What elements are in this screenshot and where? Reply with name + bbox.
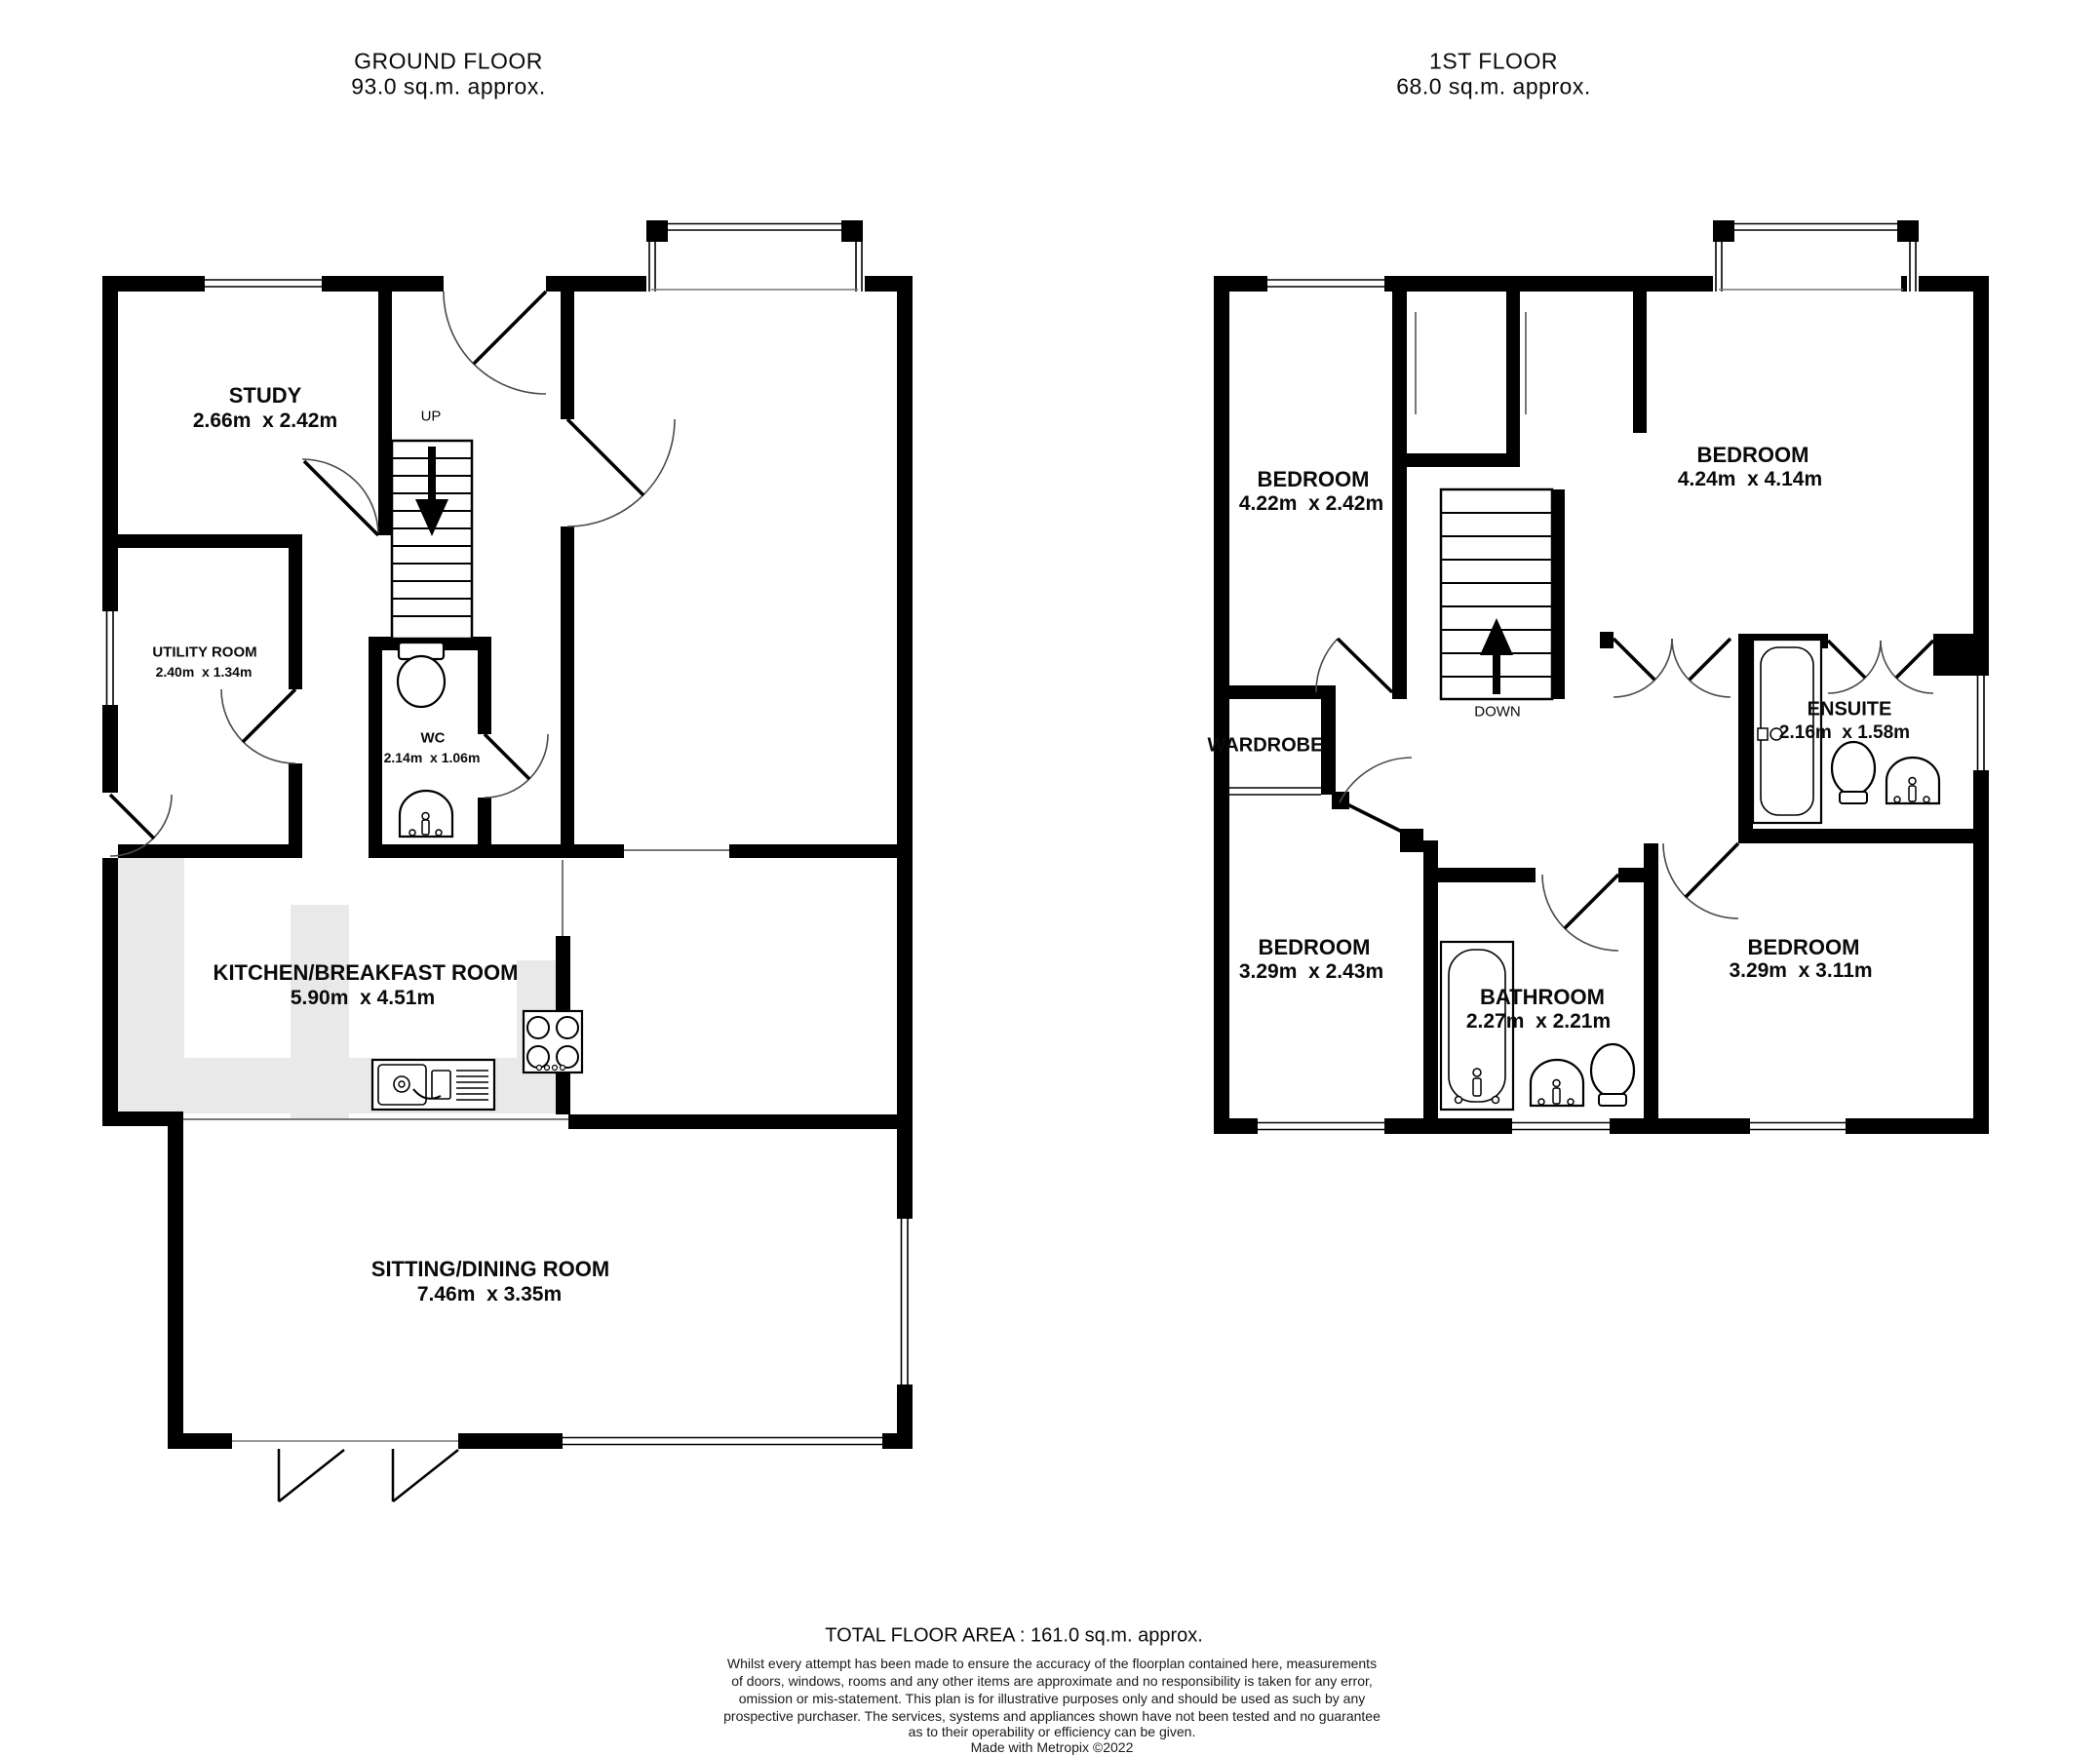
disclaimer-line: omission or mis-statement. This plan is … (739, 1691, 1366, 1706)
kitchen-label: KITCHEN/BREAKFAST ROOM (214, 960, 519, 986)
disclaimer-line: prospective purchaser. The services, sys… (723, 1708, 1381, 1724)
first-stairs (1441, 489, 1552, 699)
bay-window (646, 220, 865, 292)
bedroom-back-right-dims: 3.29m x 3.11m (1729, 959, 1872, 983)
hob-icon (524, 1011, 582, 1072)
first-floor-title: 1ST FLOOR (1429, 49, 1558, 75)
utility-label: UTILITY ROOM (152, 644, 256, 661)
reception-door-leaf (567, 419, 643, 495)
french-door-leaf (393, 1450, 458, 1501)
bedroom-back-right-door-leaf (1686, 843, 1738, 897)
study-dims: 2.66m x 2.42m (193, 409, 337, 433)
study-door-leaf (304, 461, 378, 535)
bedroom-back-right-label: BEDROOM (1748, 935, 1860, 960)
bay-window-first (1713, 220, 1919, 292)
disclaimer-line: as to their operability or efficiency ca… (909, 1724, 1196, 1739)
disclaimer-line: of doors, windows, rooms and any other i… (731, 1673, 1373, 1689)
bedroom-back-left-dims: 3.29m x 2.43m (1239, 960, 1383, 984)
ensuite-label: ENSUITE (1808, 699, 1892, 721)
bathroom-label: BATHROOM (1480, 985, 1605, 1010)
sitting-dims: 7.46m x 3.35m (417, 1283, 562, 1306)
ensuite-sink-icon (1886, 758, 1939, 803)
floorplan-drawing (0, 0, 2100, 1755)
bathroom-toilet-icon (1591, 1044, 1634, 1106)
wc-door-leaf (485, 734, 529, 779)
french-door-leaf (279, 1450, 344, 1501)
first-floor-area: 68.0 sq.m. approx. (1396, 74, 1591, 100)
kitchen-dims: 5.90m x 4.51m (291, 987, 435, 1010)
wardrobe-label: WARDROBE (1208, 735, 1324, 758)
ground-stairs (392, 441, 472, 639)
bedroom-front-door-arc (1316, 639, 1338, 692)
bedroom-master-door-leaf (1614, 639, 1654, 680)
ensuite-toilet-icon (1832, 742, 1875, 803)
ground-floor-area: 93.0 sq.m. approx. (351, 74, 546, 100)
wc-sink-icon (400, 791, 452, 837)
bedroom-back-left-door-arc (1340, 758, 1412, 802)
bathroom-sink-icon (1531, 1060, 1583, 1106)
disclaimer-line: Whilst every attempt has been made to en… (727, 1656, 1377, 1671)
bedroom-back-left-door-leaf (1343, 802, 1412, 837)
ensuite-door-leaf (1828, 641, 1865, 678)
bedroom-front-label: BEDROOM (1258, 467, 1370, 492)
wc-label: WC (421, 730, 446, 747)
ground-floor-title: GROUND FLOOR (354, 49, 543, 75)
bedroom-master-label: BEDROOM (1697, 443, 1809, 468)
total-floor-area: TOTAL FLOOR AREA : 161.0 sq.m. approx. (825, 1625, 1203, 1648)
bedroom-master-dims: 4.24m x 4.14m (1678, 468, 1822, 491)
stairs-down-label: DOWN (1474, 704, 1521, 721)
bedroom-front-door-leaf (1338, 639, 1392, 692)
bedroom-front-dims: 4.22m x 2.42m (1239, 492, 1383, 516)
floorplan-page: GROUND FLOOR 93.0 sq.m. approx. 1ST FLOO… (0, 0, 2100, 1755)
wc-dims: 2.14m x 1.06m (384, 750, 481, 765)
bathroom-dims: 2.27m x 2.21m (1466, 1010, 1611, 1033)
wc-toilet-icon (398, 643, 445, 707)
utility-dims: 2.40m x 1.34m (156, 664, 253, 680)
front-door-leaf (474, 292, 546, 364)
study-label: STUDY (229, 383, 302, 409)
bedroom-back-left-label: BEDROOM (1259, 935, 1371, 960)
kitchen-sink-icon (372, 1060, 494, 1110)
bedroom-master-door-leaf (1690, 639, 1731, 680)
utility-door-leaf (243, 689, 295, 742)
metropix-credit: Made with Metropix ©2022 (971, 1739, 1134, 1755)
ensuite-dims: 2.16m x 1.58m (1779, 722, 1910, 744)
bathroom-door-leaf (1565, 875, 1618, 928)
stairs-up-label: UP (421, 409, 442, 425)
ensuite-door-leaf (1896, 641, 1933, 678)
sitting-label: SITTING/DINING ROOM (371, 1257, 609, 1282)
